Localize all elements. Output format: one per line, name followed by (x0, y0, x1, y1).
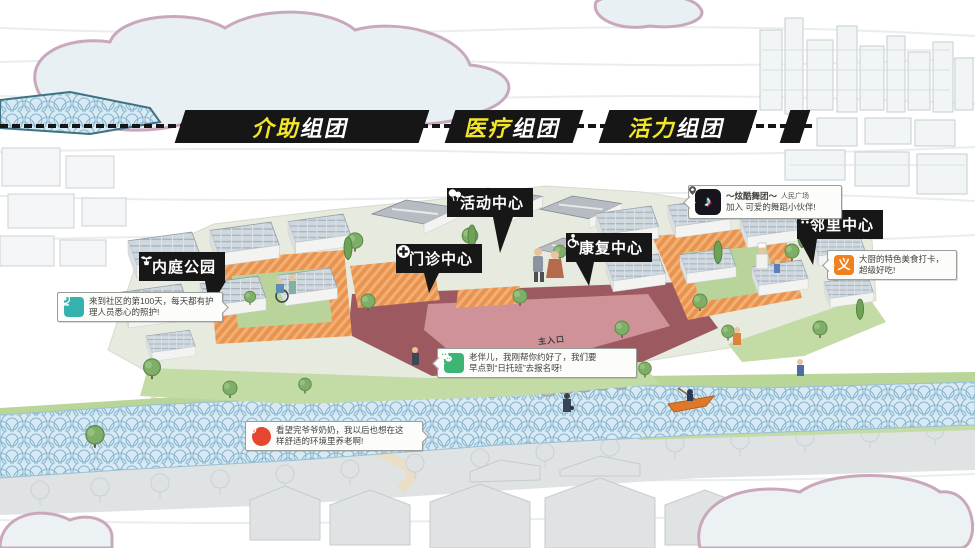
banner-rest: 组团 (675, 116, 729, 141)
banner-highlight: 介助 (251, 116, 305, 141)
tag-pointer (424, 273, 439, 293)
bubble-dance-tiktok: ♪ ～炫酷舞团～ 人民广场 加入 可爱的舞蹈小伙伴! (688, 185, 842, 219)
tag-label: 活动中心 (460, 192, 524, 213)
bubble-line: 来到社区的第100天，每天都有护 (89, 296, 214, 307)
bubble-line: 看望完爷爷奶奶，我以后也想在这 (276, 425, 404, 436)
tag-pointer (493, 217, 513, 253)
wechat-icon (444, 353, 464, 373)
banner-yiliao: 医疗组团 (445, 110, 584, 143)
weibo-icon (252, 427, 271, 446)
bubble-weibo: 看望完爷爷奶奶，我以后也想在这 样舒适的环境里养老啊! (245, 421, 423, 451)
masterplan-slide: 介助组团 医疗组团 活力组团 内庭公园 门诊中心 活动中心 康复中心 (0, 0, 975, 548)
figure-lady-blue (797, 359, 804, 376)
banner-highlight: 医疗 (463, 116, 517, 141)
bubble-line: 样舒适的环境里养老啊! (276, 436, 404, 447)
sketch-city-top-right (760, 18, 973, 194)
banner-rest: 组团 (511, 116, 565, 141)
tag-pointer (576, 262, 594, 286)
bubble-line: 加入 可爱的舞蹈小伙伴! (726, 202, 816, 213)
bubble-line: 超级好吃! (859, 265, 944, 276)
bubble-line: 理人员悉心的照护! (89, 307, 214, 318)
tag-rehab-center: 康复中心 (566, 233, 652, 262)
bubble-line: 大厨的特色美食打卡， (859, 254, 944, 265)
tag-activity-center: 活动中心 (447, 188, 533, 217)
bubble-wechat: 老伴儿，我刚帮你约好了，我们要 早点到“日托班”去报名呀! (437, 348, 637, 378)
care-app-icon (64, 297, 84, 317)
figure-walker (412, 347, 419, 365)
location-pin-icon (689, 186, 696, 195)
tag-label: 康复中心 (579, 237, 643, 258)
tiktok-icon: ♪ (695, 189, 721, 215)
bubble-line: ～炫酷舞团～ (726, 191, 777, 202)
tag-label: 内庭公园 (152, 256, 216, 277)
cloud-bottom-left (0, 513, 112, 548)
tag-pointer (799, 239, 817, 265)
bubble-line: 早点到“日托班”去报名呀! (469, 363, 597, 374)
banner-highlight: 活力 (627, 116, 681, 141)
bubble-care-app: 来到社区的第100天，每天都有护 理人员悉心的照护! (57, 292, 223, 322)
dianping-icon: 义 (834, 255, 854, 275)
figure-lady-orange (733, 327, 741, 345)
tag-clinic-center: 门诊中心 (396, 244, 482, 273)
bubble-line: 老伴儿，我刚帮你约好了，我们要 (469, 352, 597, 363)
banner-rest: 组团 (299, 116, 353, 141)
tag-inner-park: 内庭公园 (139, 252, 225, 281)
cloud-bottom-right (699, 476, 973, 548)
sketch-blocks-left (0, 148, 126, 266)
bubble-pin-text: 人民广场 (781, 192, 809, 201)
bubble-dianping: 义 大厨的特色美食打卡， 超级好吃! (827, 250, 957, 280)
tag-label: 门诊中心 (409, 248, 473, 269)
banner-jiezhu: 介助组团 (175, 110, 430, 143)
banner-huoli: 活力组团 (599, 110, 758, 143)
